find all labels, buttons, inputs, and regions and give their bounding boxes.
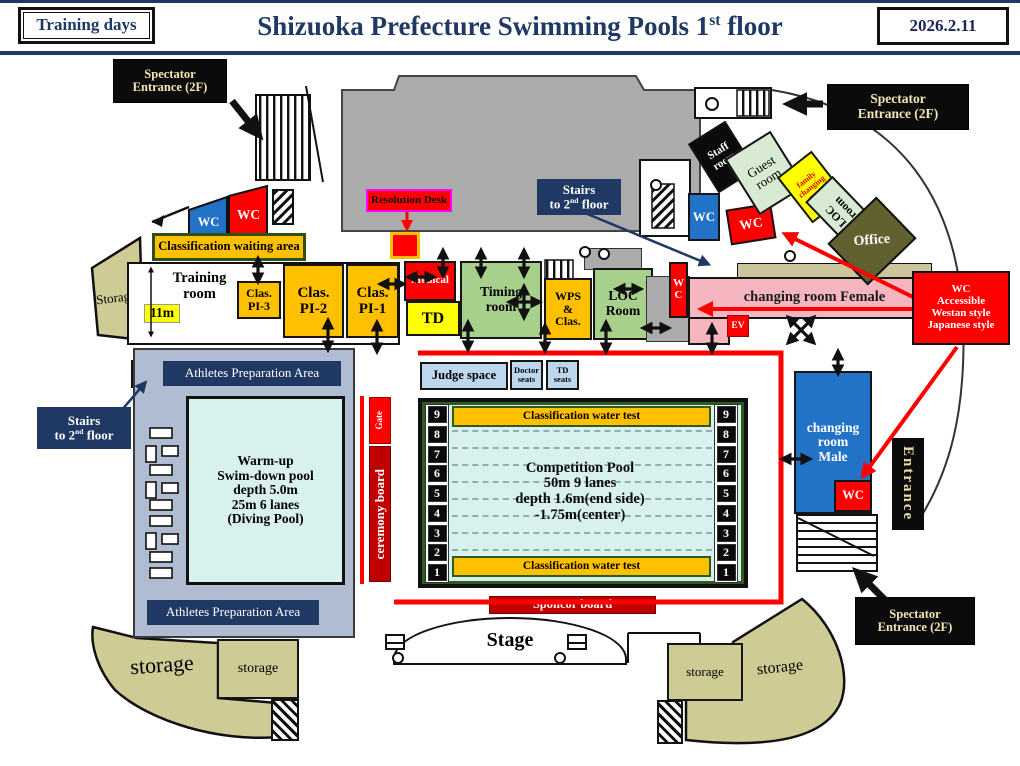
judge-space: Judge space: [420, 362, 508, 390]
wc-female: W C: [669, 262, 688, 318]
floor-plan-page: { "colors": { "navy": "#1F3864", "red": …: [0, 0, 1020, 766]
room-clas-pi2: Clas. PI-2: [283, 264, 344, 338]
stairs-top-left: [256, 95, 310, 180]
resolution-desk-square: [390, 232, 420, 259]
callout-stairs-center: Stairs to 2nd floor: [537, 179, 621, 215]
entrance-sign: Entrance: [892, 438, 924, 530]
room-timing: Timing room: [460, 261, 542, 339]
athletes-preparation-banner-top: Athletes Preparation Area: [163, 361, 341, 386]
stairs-line2: to 2nd floor: [55, 428, 114, 442]
classification-water-test-bottom: Classification water test: [452, 556, 711, 577]
lane-strip-right: 987654321: [714, 404, 738, 583]
female-lockers-strip: [737, 263, 932, 278]
callout-resolution-desk: Resolution Desk: [366, 189, 452, 212]
room-medical: Medical: [404, 261, 456, 301]
callout-spectator-bottom-right: Spectator Entrance (2F): [855, 597, 975, 645]
lane-strip-left: 987654321: [425, 404, 449, 583]
stairs-below-male: [796, 514, 878, 572]
stage-stairs-right: [567, 634, 587, 650]
hatch-box-bottom-left: [271, 699, 299, 741]
td-seats: TD seats: [546, 360, 579, 390]
wc-blue-top-right: WC: [688, 193, 720, 241]
room-wps-clas: WPS & Clas.: [544, 278, 592, 340]
room-td: TD: [406, 301, 460, 336]
callout-spectator-top-right: Spectator Entrance (2F): [827, 84, 969, 130]
stairs-line2: to 2nd floor: [550, 197, 609, 211]
lane-number: 9: [428, 406, 447, 423]
hatch-box-top-left: [273, 190, 293, 224]
training-room-label: Training room: [152, 267, 247, 307]
storage-box-bottom-right: storage: [667, 643, 743, 701]
ceremony-board: ceremony board: [369, 446, 391, 582]
room-clas-pi3: Clas. PI-3: [237, 281, 281, 319]
sponcor-board: Sponcor board: [489, 596, 656, 614]
doctor-seats: Doctor seats: [510, 360, 543, 390]
wc-male: WC: [834, 480, 872, 512]
gate-board: Gate: [369, 397, 391, 444]
stage-stairs-left: [385, 634, 405, 650]
competition-pool-label: Competition Pool 50m 9 lanes depth 1.6m(…: [460, 450, 700, 534]
wc-red-top-left-label: WC: [230, 198, 267, 232]
wc-blue-top-left-label: WC: [190, 208, 227, 238]
athletes-preparation-banner-bottom: Athletes Preparation Area: [147, 600, 319, 625]
loc-room-cap: [584, 248, 642, 270]
classification-waiting-area: Classification waiting area: [152, 233, 306, 261]
training-room-width-label: 11m: [144, 304, 180, 323]
callout-stairs-left: Stairs to 2nd floor: [37, 407, 131, 449]
changing-room-female: changing room Female: [688, 277, 941, 319]
elevator-ev: EV: [727, 315, 749, 337]
grill-above-wps: [545, 260, 573, 280]
classification-water-test-top: Classification water test: [452, 406, 711, 427]
room-clas-pi1: Clas. PI-1: [346, 264, 399, 338]
room-loc: LOC Room: [593, 268, 653, 340]
callout-spectator-top-left: Spectator Entrance (2F): [113, 59, 227, 103]
warmup-pool: Warm-up Swim-down pool depth 5.0m 25m 6 …: [186, 396, 345, 585]
callout-wc-accessible: WC Accessible Westan style Japanese styl…: [912, 271, 1010, 345]
hatch-box-bottom-right: [657, 700, 683, 744]
lane-number: 9: [717, 406, 736, 423]
storage-box-bottom-left: storage: [217, 639, 299, 699]
